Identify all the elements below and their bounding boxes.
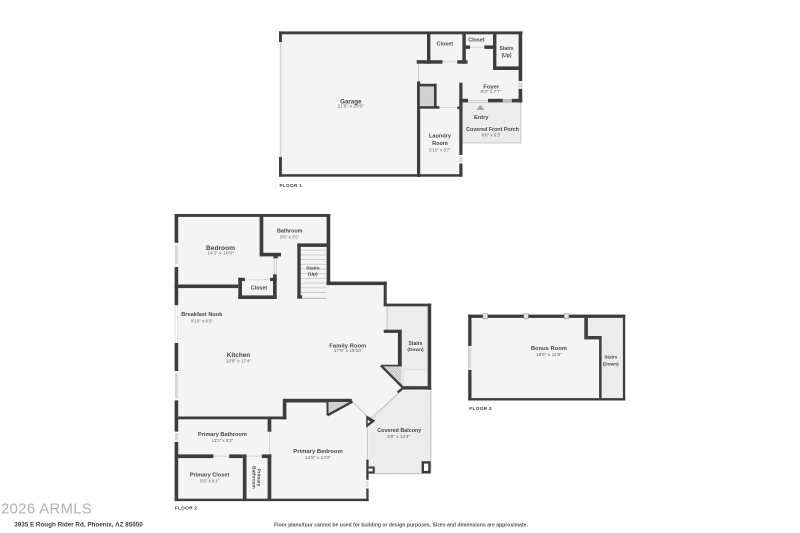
svg-text:Foyer: Foyer [483,85,500,91]
svg-text:Primary: Primary [256,469,262,487]
svg-text:2026 ARMLS: 2026 ARMLS [1,502,92,518]
svg-text:Primary Bathroom: Primary Bathroom [198,432,247,438]
svg-text:10'8" x 17'4": 10'8" x 17'4" [226,358,252,363]
svg-text:8'10" x 8'3": 8'10" x 8'3" [191,319,213,324]
svg-text:(Up): (Up) [308,272,318,278]
svg-text:Stairs: Stairs [604,354,617,359]
svg-text:9'5" x 3'5": 9'5" x 3'5" [280,234,300,239]
svg-text:5'5" x 8'1": 5'5" x 8'1" [200,479,220,484]
svg-text:Stairs: Stairs [500,46,514,52]
svg-text:8'6" x 6'3": 8'6" x 6'3" [482,133,502,138]
svg-text:14'2" x 10'9": 14'2" x 10'9" [207,251,234,257]
svg-text:Breakfast Nook: Breakfast Nook [181,312,223,318]
svg-text:Closet: Closet [437,42,454,48]
svg-text:14'9" x 14'2": 14'9" x 14'2" [305,455,332,461]
svg-text:FLOOR 3: FLOOR 3 [469,406,492,412]
svg-text:Bonus Room: Bonus Room [531,346,567,352]
svg-text:Floor plans/tour cannot be use: Floor plans/tour cannot be used for buil… [274,522,528,528]
svg-text:13'3" x 5'2": 13'3" x 5'2" [212,438,234,443]
svg-text:8'3" x 7'7": 8'3" x 7'7" [481,89,502,95]
svg-text:Covered Balcony: Covered Balcony [377,428,421,434]
svg-text:(Up): (Up) [502,53,512,59]
svg-text:Bedroom: Bedroom [206,245,235,252]
svg-text:17'8" x 15'10": 17'8" x 15'10" [334,348,363,354]
svg-text:3935 E Rough Rider Rd, Phoenix: 3935 E Rough Rider Rd, Phoenix, AZ 85050 [14,521,143,528]
svg-text:5'10" x 9'7": 5'10" x 9'7" [429,148,451,153]
svg-text:Stairs: Stairs [306,265,320,271]
svg-text:FLOOR 1: FLOOR 1 [280,183,303,189]
svg-text:Covered Front Porch: Covered Front Porch [466,127,519,133]
svg-text:Stairs: Stairs [409,341,423,347]
svg-text:Bathroom: Bathroom [250,466,256,489]
svg-text:Closet: Closet [468,37,485,43]
svg-text:Primary Bedroom: Primary Bedroom [293,449,342,455]
svg-text:(Down): (Down) [603,362,619,367]
svg-text:Entry: Entry [474,115,489,121]
svg-text:18'6" x 11'9": 18'6" x 11'9" [536,352,562,358]
svg-text:9'8" x 12'4": 9'8" x 12'4" [387,434,410,439]
svg-text:Laundry: Laundry [429,134,452,140]
svg-text:FLOOR 2: FLOOR 2 [175,506,198,512]
svg-text:Closet: Closet [251,285,268,291]
svg-text:21'6" x 20'6": 21'6" x 20'6" [338,103,365,109]
svg-text:Room: Room [432,141,448,147]
svg-text:(Down): (Down) [407,347,424,353]
svg-text:Bathroom: Bathroom [277,229,303,235]
svg-text:Primary Closet: Primary Closet [190,473,230,479]
